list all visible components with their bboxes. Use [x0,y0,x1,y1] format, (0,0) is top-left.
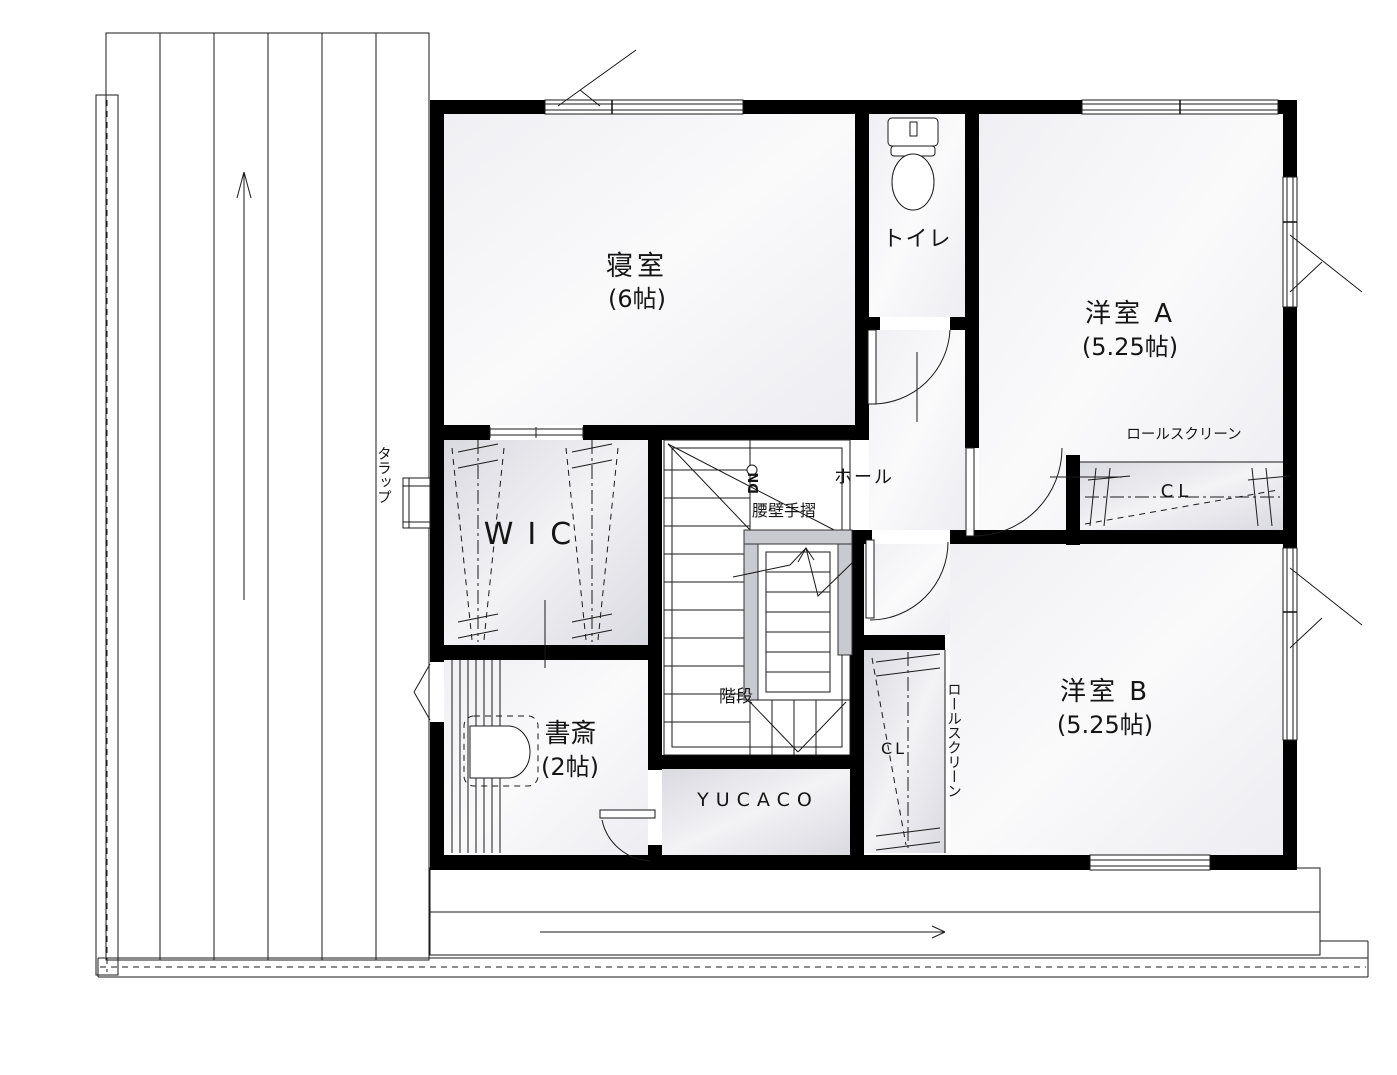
room-label-bedroom: 寝室 [557,252,717,282]
western-b-side-window [1283,548,1362,740]
annotation-handrail: 腰壁手摺 [752,502,816,520]
room-label-toilet: トイレ [870,228,964,252]
room-label-hall: ホール [822,468,906,488]
room-label-yucaco: YUCACO [668,790,848,811]
annotation-ladder: タラップ [374,446,390,556]
room-label-study: 書斎 [518,720,623,749]
annotation-closet-a: CL [1145,482,1209,502]
room-label-stairs: 階段 [700,688,772,707]
bedroom-wic-sliding-door [490,427,583,438]
room-size-western-b: (5.25帖) [1015,712,1195,738]
room-size-western-a: (5.25帖) [1040,334,1220,360]
bedroom-top-window [545,50,743,114]
annotation-roll-screen-a: ロールスクリーン [1108,428,1260,444]
floor-plan-drawing [0,0,1397,1075]
room-size-study: (2帖) [514,754,626,780]
room-label-wic: WIC [452,518,617,551]
study-outer-door-mark [414,664,430,720]
western-b-bottom-window [1090,855,1210,870]
western-a-top-window [1082,100,1278,114]
ladder-bracket [403,478,430,528]
annotation-closet-b: CL [868,740,920,758]
western-a-side-window [1283,177,1362,307]
room-label-western-b: 洋室 B [1015,678,1195,707]
annotation-roll-screen-b: ロールスクリーン [944,682,960,822]
lower-roof [98,868,1368,977]
roof-slope-arrow-up [237,172,251,600]
room-size-bedroom: (6帖) [557,286,717,312]
annotation-dn: DN [748,472,762,494]
room-label-western-a: 洋室 A [1040,300,1220,329]
floor-plan: 寝室 (6帖) トイレ 洋室 A (5.25帖) 洋室 B (5.25帖) WI… [0,0,1397,1075]
roof-slope-arrow-right [540,926,945,938]
